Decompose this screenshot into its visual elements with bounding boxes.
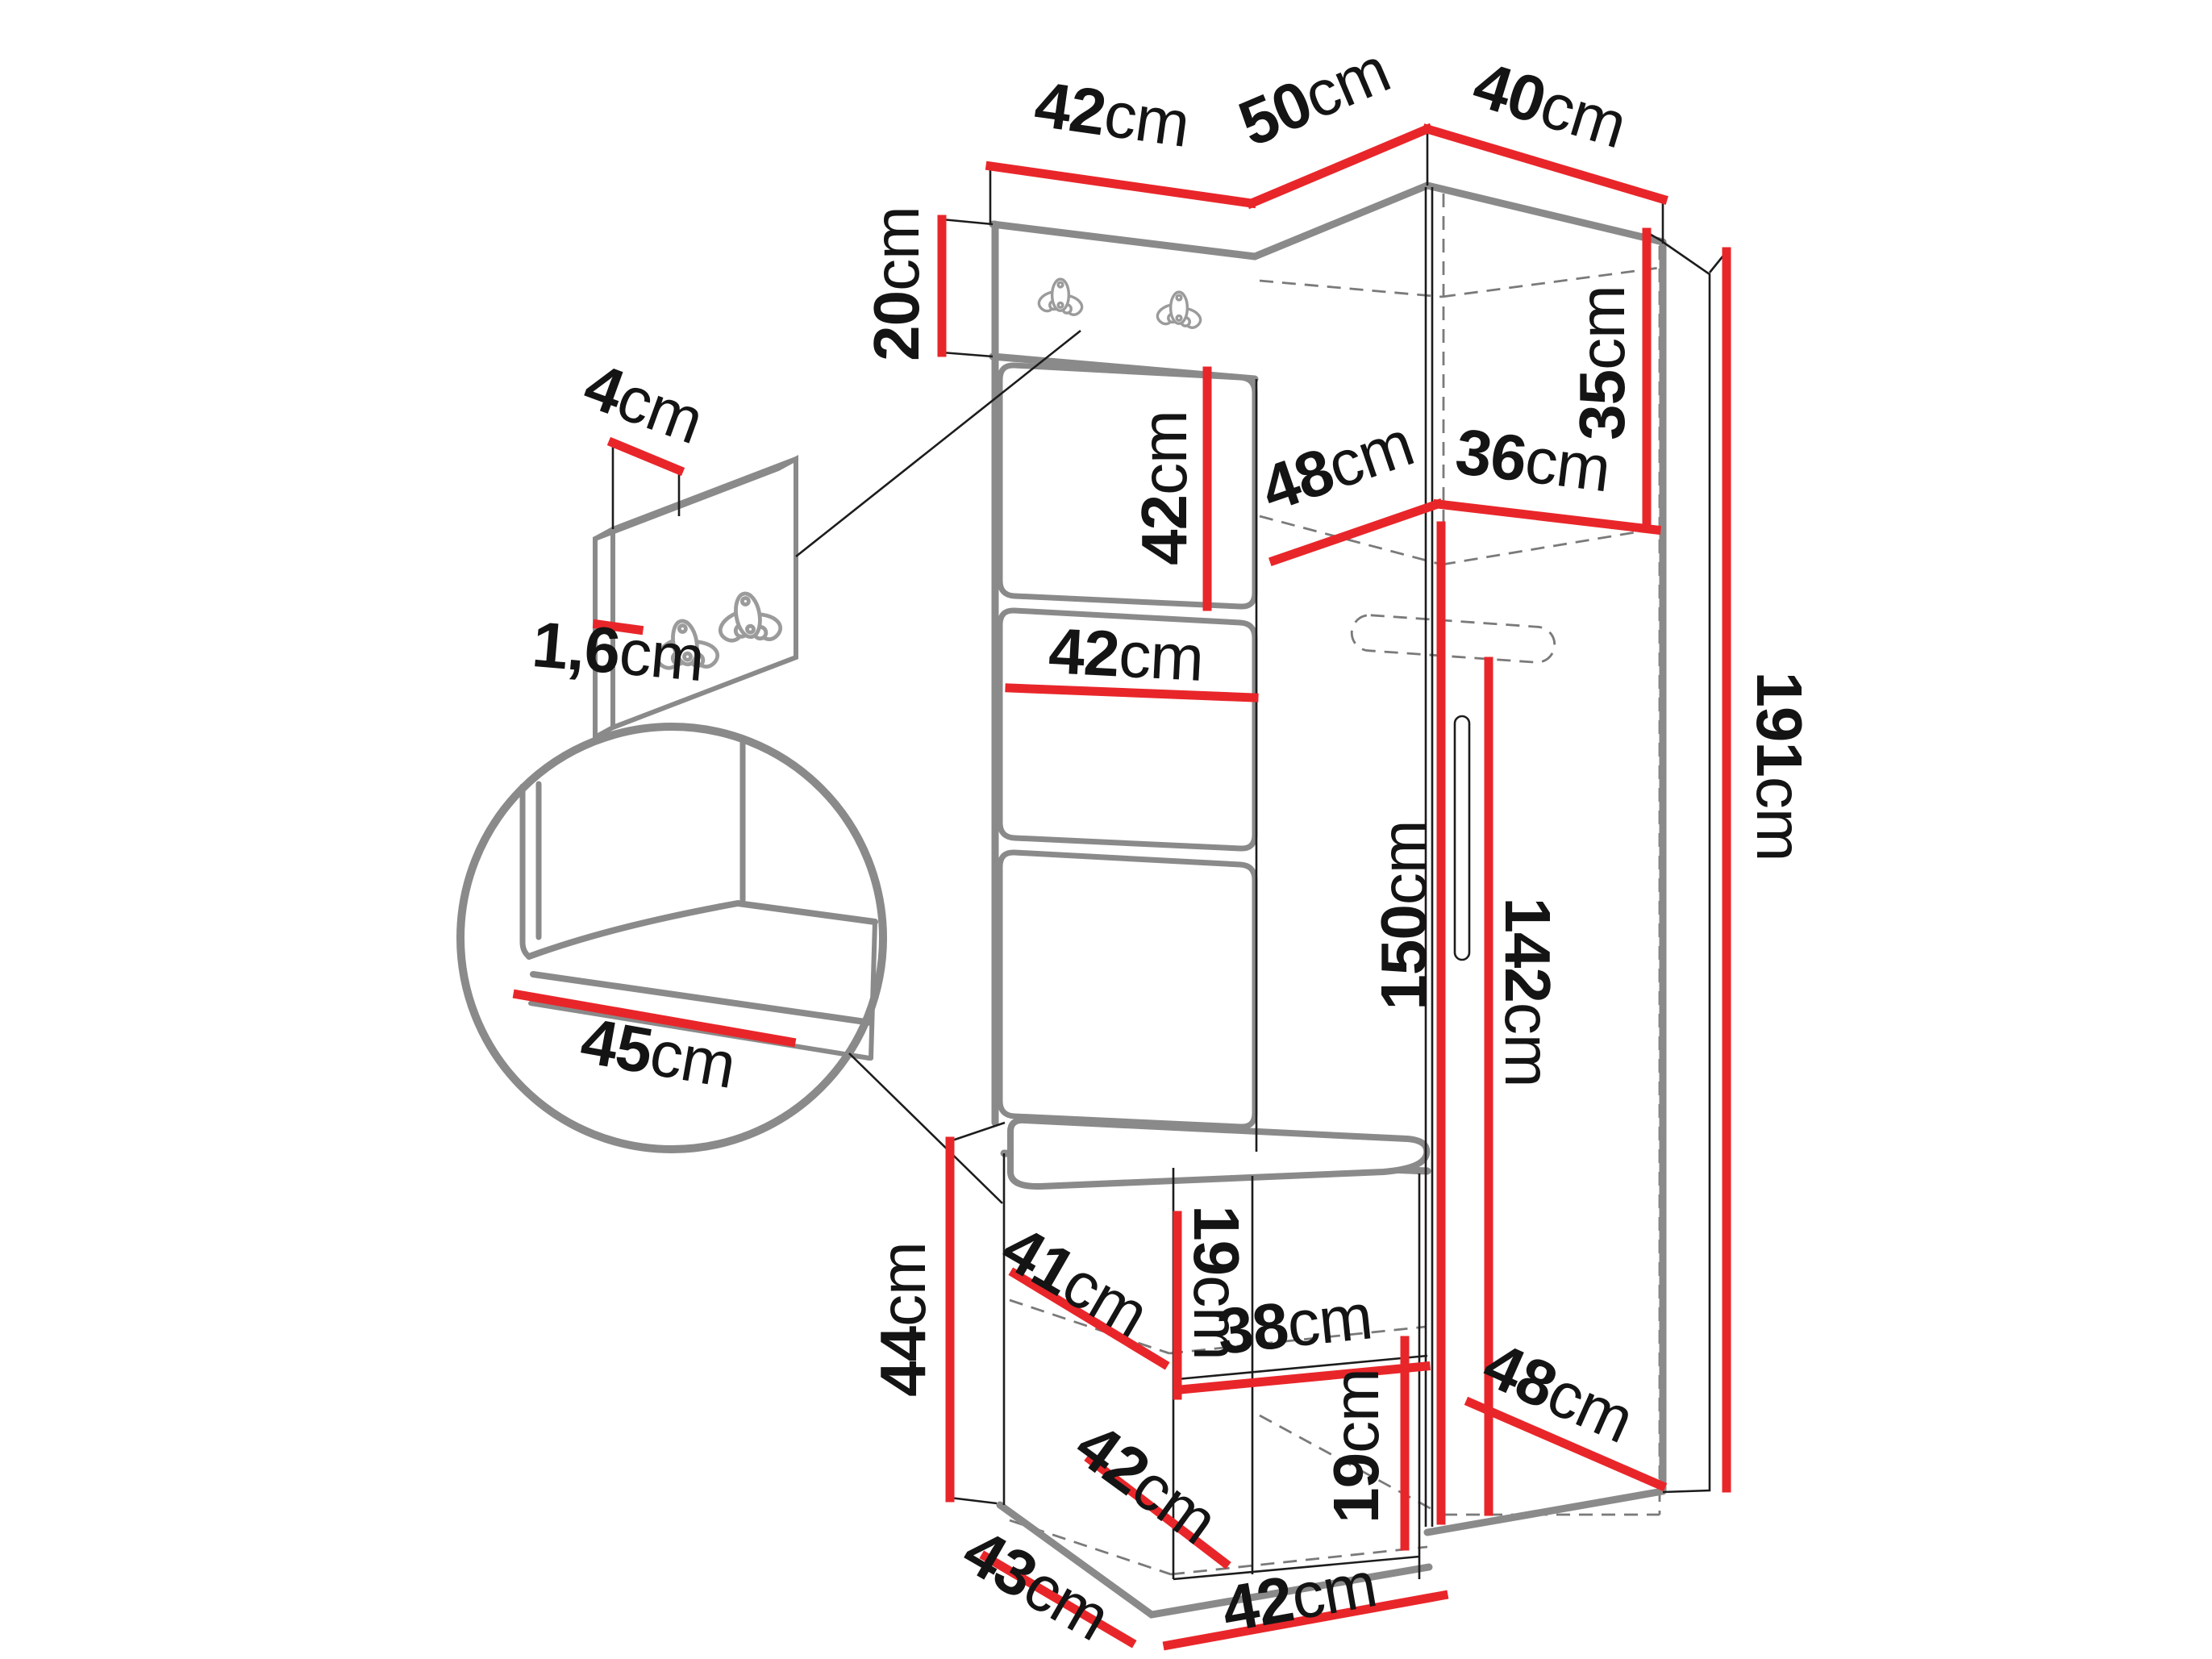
dimension-label-bench-height: 44cm bbox=[867, 1242, 939, 1397]
unit-top-edges bbox=[993, 185, 1663, 256]
dimension-label-top-shelf-height: 35cm bbox=[1566, 286, 1638, 440]
dimension-label-total-height: 191cm bbox=[1743, 671, 1815, 861]
dimension-label-bench-floor-depth: 42cm bbox=[1063, 1409, 1230, 1558]
dimension-label-door-height: 142cm bbox=[1492, 897, 1564, 1086]
dimension-label-bench-shelf-width: 38cm bbox=[1214, 1280, 1375, 1368]
cushion-1 bbox=[1000, 365, 1255, 606]
wardrobe-right-side bbox=[1663, 242, 1710, 1492]
dimension-label-niche-height: 150cm bbox=[1368, 820, 1439, 1010]
door-handle bbox=[1455, 716, 1469, 960]
dimension-label-corner-inner-left: 48cm bbox=[1252, 407, 1422, 526]
callout-seat-detail bbox=[849, 1053, 1002, 1203]
dimension-label-corner-top-width: 50cm bbox=[1229, 34, 1399, 160]
hanger-rod bbox=[1351, 614, 1556, 663]
hook-panel-detail bbox=[595, 459, 796, 737]
dimension-label-cushion-width: 42cm bbox=[1047, 615, 1205, 694]
dimension-line-corner-inner-right bbox=[1438, 504, 1656, 530]
dimension-label-bench-shelf-depth: 41cm bbox=[990, 1211, 1160, 1351]
wardrobe-bottom-edge bbox=[1427, 1491, 1663, 1532]
dimension-label-bench-width: 42cm bbox=[1217, 1548, 1381, 1645]
dim-ticks-20cm bbox=[942, 219, 993, 356]
bench-seat-cushion bbox=[1010, 1120, 1427, 1186]
dimension-label-cushion-height: 42cm bbox=[1128, 411, 1200, 565]
dimension-label-hook-board-height: 20cm bbox=[860, 206, 932, 361]
cushion-3 bbox=[1000, 852, 1255, 1127]
dimension-line-panel-top-width bbox=[990, 166, 1252, 203]
dimension-label-bench-plinth-height: 19cm bbox=[1320, 1369, 1392, 1524]
dimension-label-panel-top-width: 42cm bbox=[1031, 68, 1193, 160]
dimension-label-hook-panel-thickness: 1,6cm bbox=[530, 608, 707, 694]
furniture-dimension-diagram: 42cm50cm40cm20cm4cm1,6cm42cm48cm36cm35cm… bbox=[0, 0, 2212, 1659]
dimension-label-hook-panel-width: 4cm bbox=[575, 349, 712, 457]
